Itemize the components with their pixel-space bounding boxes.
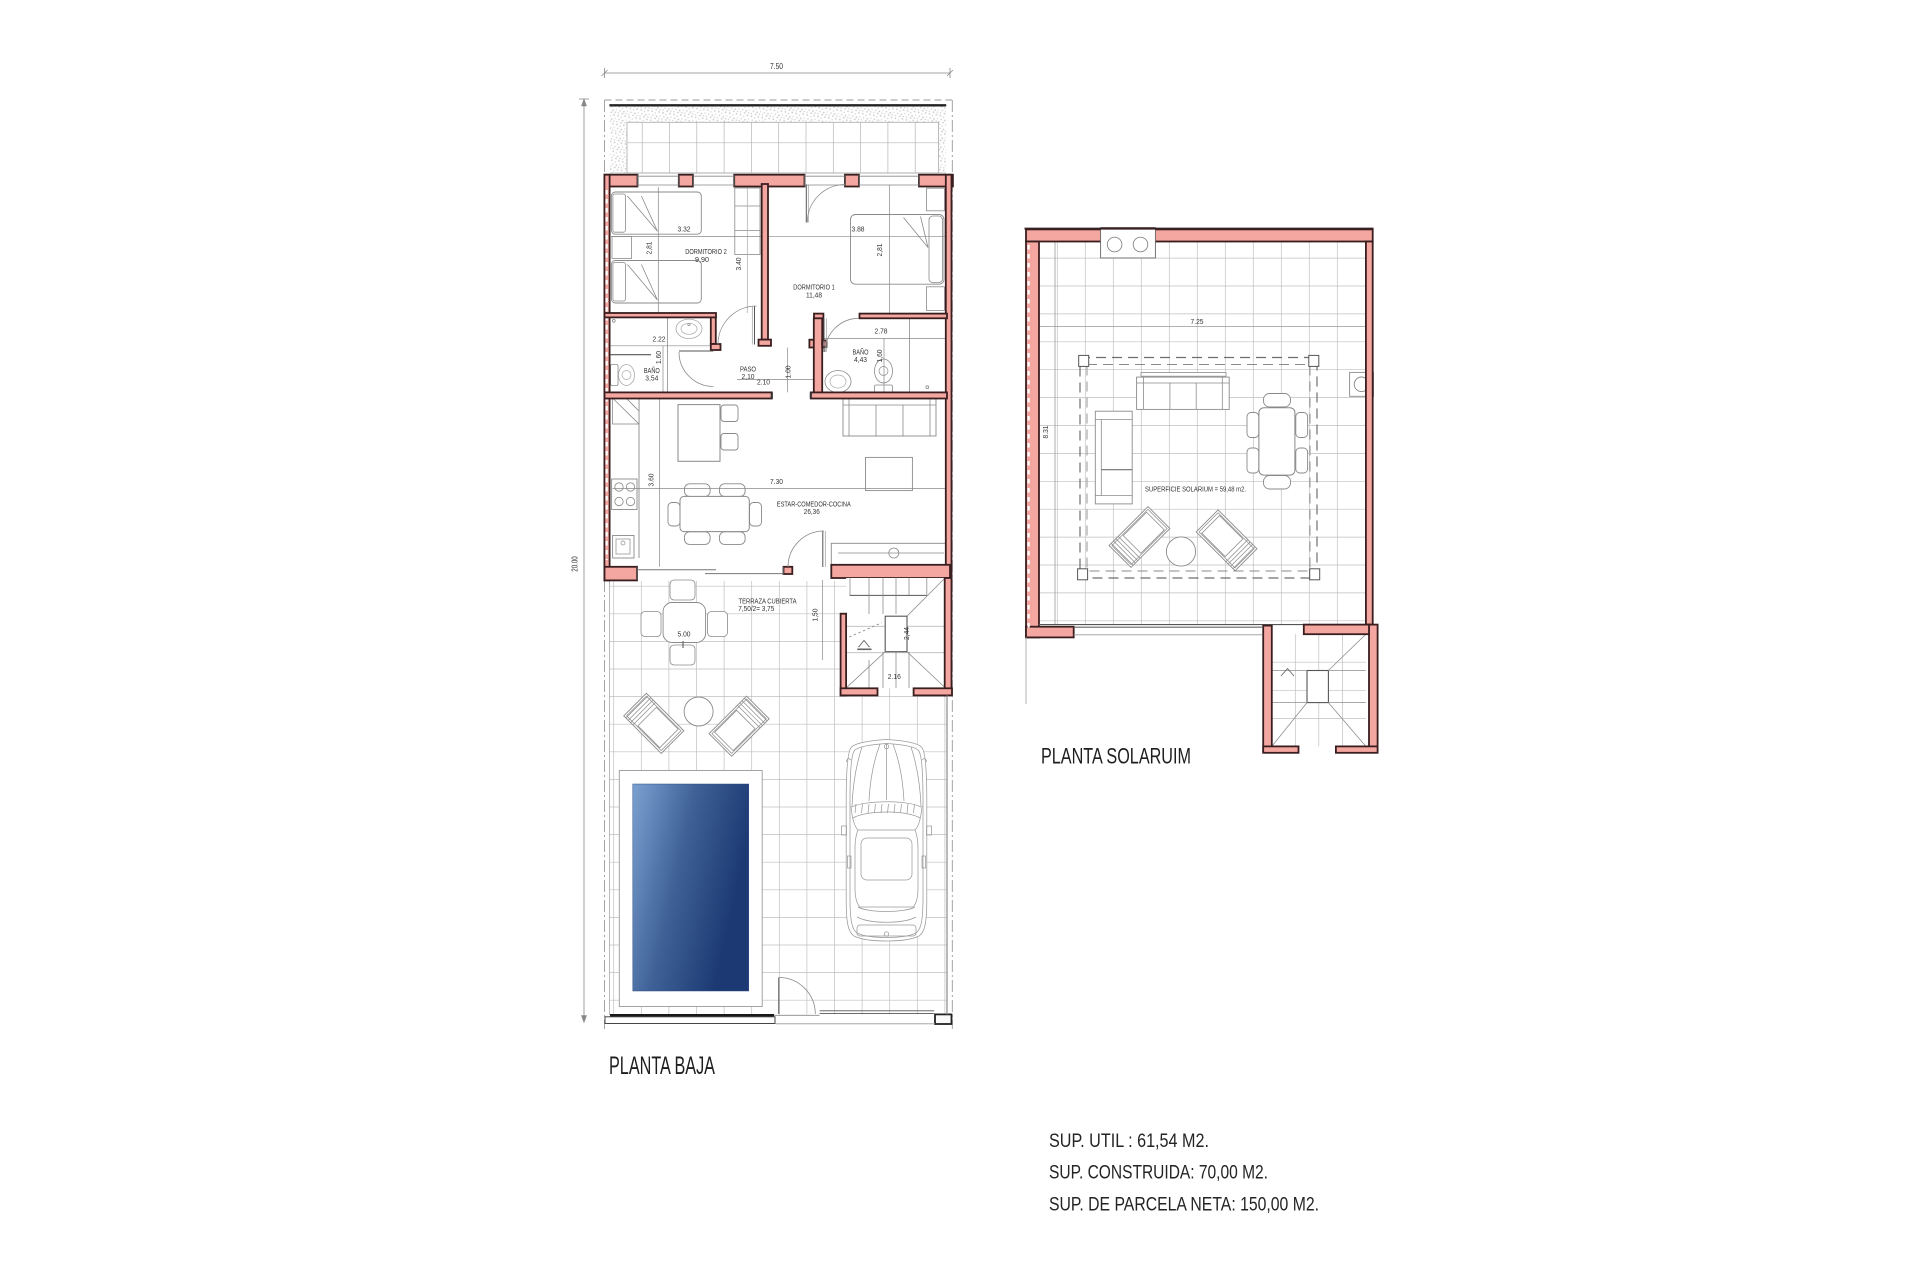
svg-text:7.30: 7.30	[770, 479, 783, 486]
svg-text:SUP. DE PARCELA NETA: 150,00 M: SUP. DE PARCELA NETA: 150,00 M2.	[1049, 1194, 1319, 1216]
svg-text:DORMITORIO 2: DORMITORIO 2	[685, 249, 727, 256]
svg-text:1,50: 1,50	[813, 608, 820, 621]
svg-text:20.00: 20.00	[571, 556, 580, 572]
svg-text:5.00: 5.00	[678, 632, 691, 639]
svg-text:SUP. CONSTRUIDA: 70,00 M2.: SUP. CONSTRUIDA: 70,00 M2.	[1049, 1162, 1268, 1184]
svg-text:4,43: 4,43	[854, 357, 867, 364]
svg-text:BAÑO: BAÑO	[644, 366, 660, 375]
svg-text:7.25: 7.25	[1191, 319, 1204, 326]
svg-text:9,90: 9,90	[695, 257, 709, 264]
svg-text:2,81: 2,81	[877, 243, 884, 256]
svg-text:PLANTA BAJA: PLANTA BAJA	[609, 1052, 715, 1080]
svg-text:2.16: 2.16	[888, 674, 901, 681]
svg-text:2,10: 2,10	[742, 374, 755, 381]
svg-text:2.78: 2.78	[875, 329, 888, 336]
svg-text:11,48: 11,48	[806, 293, 822, 300]
svg-text:7,50/2= 3,75: 7,50/2= 3,75	[738, 606, 774, 613]
svg-text:1.00: 1.00	[786, 365, 793, 378]
svg-text:BAÑO: BAÑO	[853, 348, 869, 357]
svg-text:3.60: 3.60	[649, 473, 656, 486]
svg-text:2.22: 2.22	[653, 337, 666, 344]
svg-text:SUPERFICIE SOLARIUM = 59,48 m2: SUPERFICIE SOLARIUM = 59,48 m2.	[1145, 487, 1246, 494]
svg-text:SUP. UTIL : 61,54 M2.: SUP. UTIL : 61,54 M2.	[1049, 1130, 1209, 1152]
svg-text:2.10: 2.10	[757, 380, 770, 387]
svg-text:DORMITORIO 1: DORMITORIO 1	[793, 285, 835, 292]
svg-text:3.40: 3.40	[736, 257, 743, 270]
svg-text:2,81: 2,81	[647, 241, 654, 254]
svg-text:8.31: 8.31	[1043, 425, 1050, 438]
svg-text:3.88: 3.88	[852, 227, 865, 234]
svg-text:ESTAR-COMEDOR-COCINA: ESTAR-COMEDOR-COCINA	[777, 502, 851, 509]
svg-text:3.32: 3.32	[678, 227, 691, 234]
svg-text:TERRAZA CUBIERTA: TERRAZA CUBIERTA	[739, 599, 797, 606]
svg-text:3,54: 3,54	[645, 376, 658, 383]
svg-text:26,36: 26,36	[804, 509, 820, 516]
svg-text:7.50: 7.50	[770, 62, 783, 71]
svg-text:PLANTA SOLARUIM: PLANTA SOLARUIM	[1041, 744, 1191, 769]
svg-text:PASO: PASO	[740, 367, 756, 374]
svg-text:2,44: 2,44	[904, 627, 911, 640]
svg-text:1,60: 1,60	[877, 349, 884, 362]
svg-text:1.60: 1.60	[656, 351, 663, 364]
